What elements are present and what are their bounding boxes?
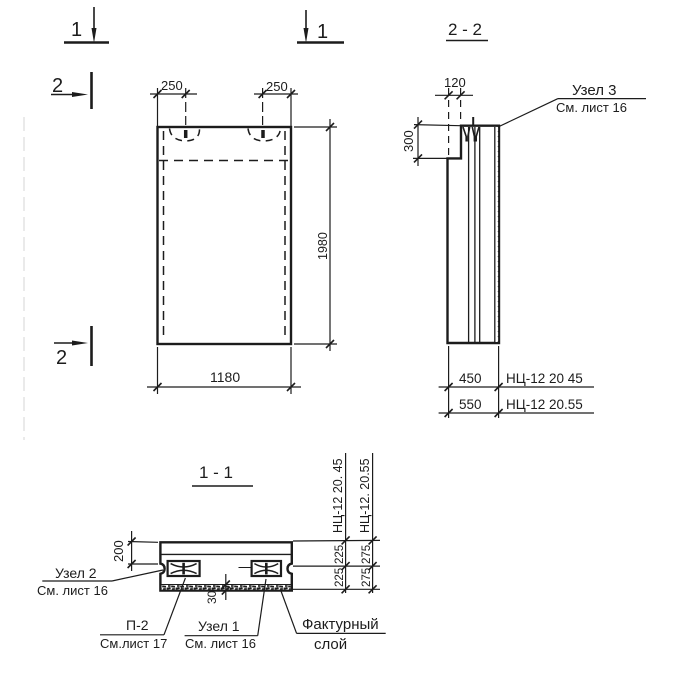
svg-text:НЦ-12 20.55: НЦ-12 20.55 [506, 397, 583, 412]
svg-text:См. лист 16: См. лист 16 [185, 636, 256, 651]
svg-text:2: 2 [56, 347, 67, 369]
svg-text:Узел 1: Узел 1 [198, 618, 240, 634]
svg-text:120: 120 [444, 75, 466, 90]
svg-text:1180: 1180 [210, 369, 240, 385]
svg-text:1: 1 [71, 19, 82, 41]
svg-text:1 - 1: 1 - 1 [199, 463, 233, 482]
svg-text:См. лист 16: См. лист 16 [556, 100, 627, 115]
svg-text:550: 550 [459, 397, 482, 412]
svg-text:2: 2 [52, 75, 63, 97]
svg-text:П-2: П-2 [126, 617, 149, 633]
svg-text:слой: слой [314, 636, 347, 653]
svg-text:300: 300 [401, 130, 416, 152]
svg-text:НЦ-12. 20.55: НЦ-12. 20.55 [358, 458, 372, 533]
svg-text:450: 450 [459, 371, 482, 386]
svg-text:225: 225 [334, 568, 346, 587]
svg-text:См.лист 17: См.лист 17 [100, 636, 167, 651]
svg-text:250: 250 [266, 79, 288, 94]
svg-text:1: 1 [317, 21, 328, 43]
svg-text:См. лист 16: См. лист 16 [37, 583, 108, 598]
svg-text:Узел 3: Узел 3 [572, 82, 617, 99]
svg-text:НЦ-12 20 45: НЦ-12 20 45 [506, 371, 583, 386]
svg-text:250: 250 [161, 78, 183, 93]
svg-text:2 - 2: 2 - 2 [448, 20, 482, 39]
svg-text:НЦ-12 20. 45: НЦ-12 20. 45 [331, 458, 345, 533]
svg-text:1980: 1980 [316, 232, 330, 260]
svg-text:200: 200 [111, 540, 126, 562]
svg-text:275: 275 [361, 568, 373, 587]
svg-text:Узел 2: Узел 2 [55, 565, 97, 581]
svg-text:30: 30 [205, 590, 219, 604]
svg-text:275: 275 [361, 545, 373, 564]
svg-text:Фактурный: Фактурный [302, 616, 379, 633]
svg-text:225: 225 [334, 545, 346, 564]
